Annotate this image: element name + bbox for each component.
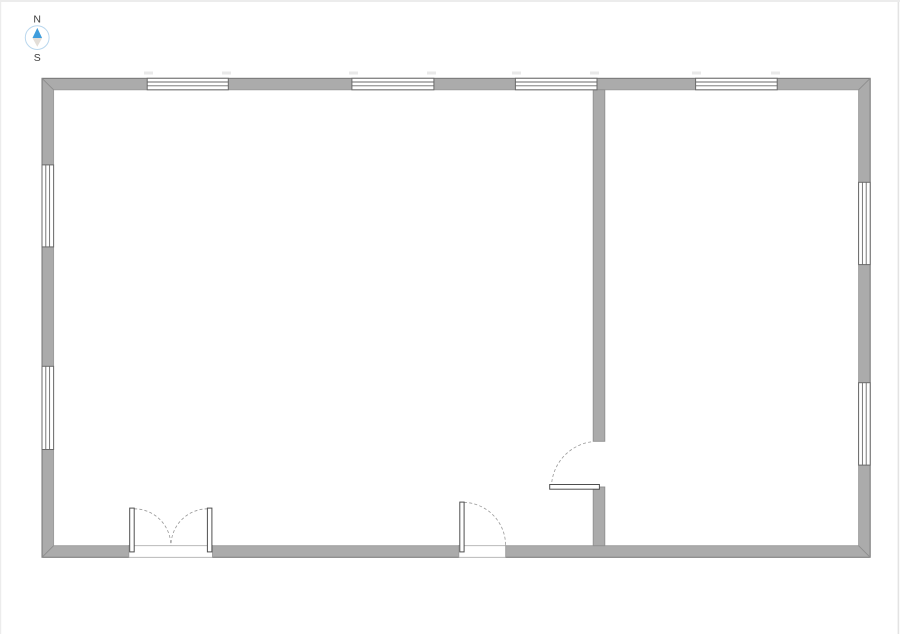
svg-text:N: N — [33, 14, 41, 26]
svg-text:S: S — [34, 52, 41, 64]
